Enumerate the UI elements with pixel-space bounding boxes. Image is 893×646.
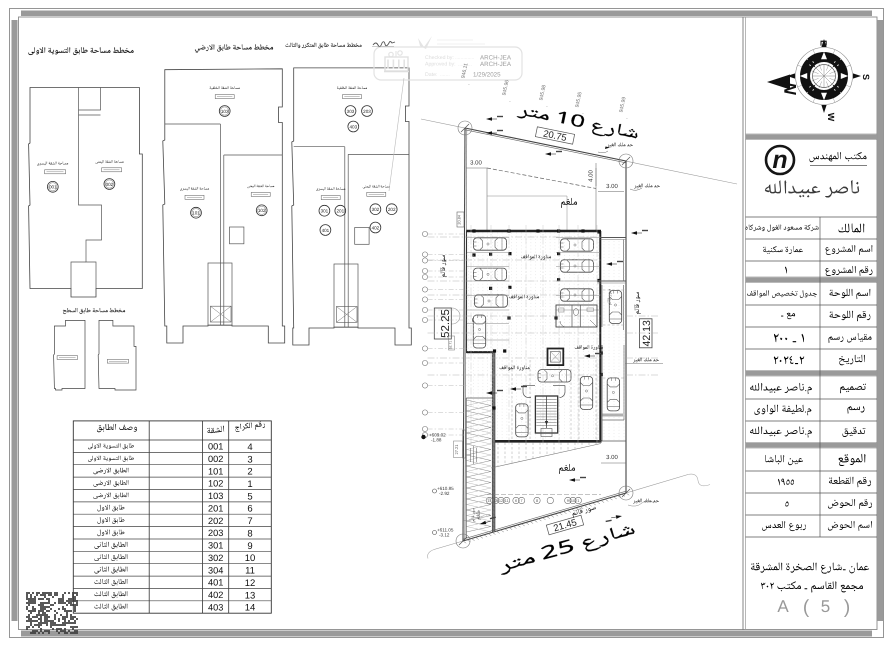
svg-text:301: 301 <box>321 209 329 214</box>
svg-text:ARCH-JEA: ARCH-JEA <box>480 61 512 68</box>
svg-text:N: N <box>781 82 800 95</box>
svg-text:13: 13 <box>245 590 256 601</box>
svg-text:201: 201 <box>336 209 344 214</box>
svg-text:6: 6 <box>247 504 252 515</box>
svg-text:103: 103 <box>208 491 223 501</box>
svg-text:102: 102 <box>258 208 266 213</box>
svg-text:11: 11 <box>505 499 509 503</box>
svg-text:52.25: 52.25 <box>440 309 452 338</box>
svg-text:203: 203 <box>363 109 371 114</box>
svg-text:12: 12 <box>499 499 503 503</box>
svg-text:4: 4 <box>247 442 252 453</box>
svg-text:7: 7 <box>247 516 252 527</box>
svg-text:001: 001 <box>208 442 223 452</box>
svg-text:304: 304 <box>208 565 223 575</box>
svg-text:1: 1 <box>247 479 252 490</box>
svg-text:5: 5 <box>247 491 252 502</box>
svg-text:102: 102 <box>208 479 223 489</box>
svg-text:W: W <box>826 113 836 122</box>
svg-text:10: 10 <box>571 499 575 503</box>
svg-text:A: A <box>777 597 789 616</box>
svg-text:52.71: 52.71 <box>449 341 453 350</box>
svg-text:6: 6 <box>515 499 517 503</box>
svg-text:..............: .............. <box>455 55 474 61</box>
svg-text:.......: ....... <box>440 72 450 78</box>
svg-text:303: 303 <box>347 109 355 114</box>
svg-text:202: 202 <box>388 207 396 212</box>
svg-text:402: 402 <box>372 225 380 230</box>
svg-text:9: 9 <box>247 541 252 552</box>
svg-text:401: 401 <box>322 228 330 233</box>
svg-text:401: 401 <box>208 578 223 588</box>
svg-text:3.00: 3.00 <box>606 183 618 190</box>
svg-text:Approved by:: Approved by: <box>425 62 456 68</box>
svg-text:302: 302 <box>208 553 223 563</box>
svg-text:27.21: 27.21 <box>454 444 459 455</box>
svg-text:3.00: 3.00 <box>606 454 618 461</box>
svg-text:-2.92: -2.92 <box>439 491 450 496</box>
svg-text:101: 101 <box>208 466 223 476</box>
svg-text:Checked by:: Checked by: <box>425 55 454 61</box>
svg-text:4.00: 4.00 <box>588 170 595 182</box>
svg-text:402: 402 <box>208 590 223 600</box>
svg-text:11: 11 <box>245 566 255 577</box>
svg-text:n: n <box>772 146 787 174</box>
svg-text:12: 12 <box>245 578 256 589</box>
svg-text:301: 301 <box>208 541 223 551</box>
svg-text:101: 101 <box>192 211 200 216</box>
svg-text:10: 10 <box>245 553 256 564</box>
svg-text:9: 9 <box>567 499 569 503</box>
svg-text:-1.88: -1.88 <box>431 438 442 443</box>
svg-text:001: 001 <box>49 185 57 190</box>
svg-text:002: 002 <box>208 454 223 464</box>
svg-text:8: 8 <box>536 499 538 503</box>
svg-text:-3.12: -3.12 <box>439 533 450 538</box>
svg-text:202: 202 <box>208 516 223 526</box>
svg-text:E: E <box>819 40 829 46</box>
svg-text:13: 13 <box>493 499 497 503</box>
svg-text:002: 002 <box>106 182 114 187</box>
svg-text:14: 14 <box>245 603 256 614</box>
svg-text:2: 2 <box>247 467 252 478</box>
svg-text:(: ( <box>803 597 810 618</box>
svg-text:): ) <box>844 597 850 618</box>
svg-text:S: S <box>861 74 871 80</box>
svg-text:1: 1 <box>577 499 579 503</box>
svg-text:Date:: Date: <box>425 72 437 78</box>
svg-text:20.84: 20.84 <box>458 215 462 225</box>
svg-text:8: 8 <box>247 528 252 539</box>
svg-text:7: 7 <box>521 499 523 503</box>
svg-text:1/29/2025: 1/29/2025 <box>473 72 501 79</box>
svg-text:201: 201 <box>208 503 223 513</box>
svg-text:403: 403 <box>349 124 357 129</box>
svg-text:203: 203 <box>208 528 223 538</box>
svg-text:103: 103 <box>221 109 229 114</box>
svg-text:5: 5 <box>821 597 830 616</box>
svg-text:3.00: 3.00 <box>470 160 482 167</box>
svg-text:403: 403 <box>208 602 223 612</box>
svg-text:302: 302 <box>372 207 380 212</box>
svg-text:3: 3 <box>247 454 252 465</box>
